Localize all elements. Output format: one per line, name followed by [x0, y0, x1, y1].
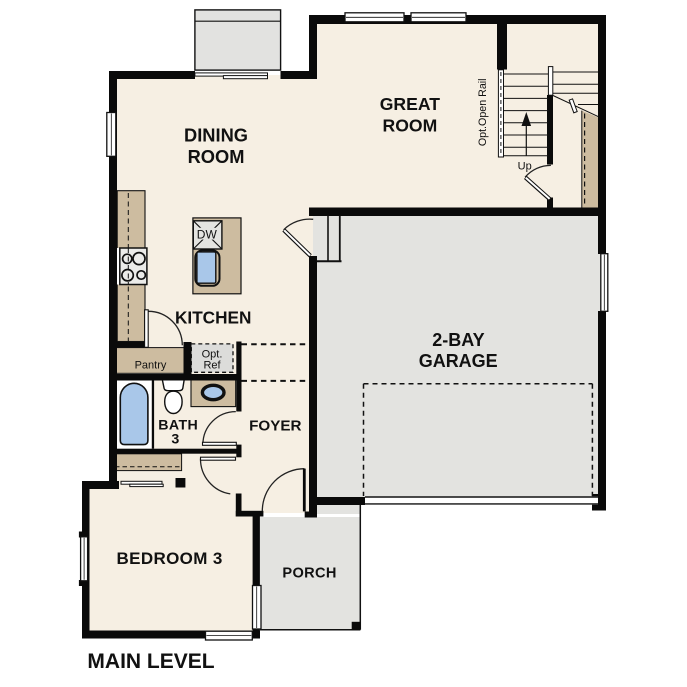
- svg-text:2-BAY: 2-BAY: [432, 330, 484, 350]
- svg-text:FOYER: FOYER: [249, 418, 301, 435]
- svg-text:GARAGE: GARAGE: [419, 351, 498, 371]
- svg-text:GREAT: GREAT: [380, 94, 441, 114]
- svg-text:ROOM: ROOM: [383, 116, 438, 136]
- svg-text:KITCHEN: KITCHEN: [175, 308, 251, 328]
- svg-text:Ref: Ref: [203, 360, 221, 372]
- svg-text:ROOM: ROOM: [188, 146, 245, 167]
- svg-text:Opt.Open Rail: Opt.Open Rail: [477, 78, 489, 146]
- svg-text:DINING: DINING: [184, 125, 248, 146]
- svg-text:3: 3: [171, 432, 179, 448]
- svg-text:DW: DW: [197, 227, 218, 241]
- svg-text:Up: Up: [518, 160, 532, 172]
- svg-text:PORCH: PORCH: [282, 565, 336, 581]
- svg-text:Pantry: Pantry: [135, 359, 167, 371]
- svg-text:MAIN LEVEL: MAIN LEVEL: [87, 650, 214, 673]
- svg-text:BEDROOM 3: BEDROOM 3: [117, 549, 223, 568]
- svg-text:Opt.: Opt.: [202, 348, 223, 360]
